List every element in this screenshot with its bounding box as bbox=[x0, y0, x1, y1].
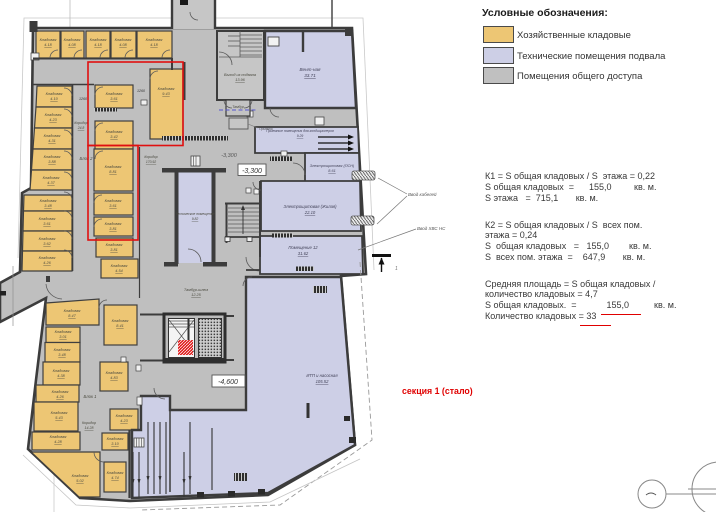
svg-text:170.92: 170.92 bbox=[146, 160, 156, 164]
svg-text:1260: 1260 bbox=[137, 89, 145, 93]
svg-text:Кладовая: Кладовая bbox=[44, 155, 61, 159]
svg-text:4.18: 4.18 bbox=[150, 43, 158, 47]
svg-text:Приемные помещения для кондици: Приемные помещения для кондиционеров bbox=[266, 129, 334, 133]
svg-text:3.62: 3.62 bbox=[43, 242, 51, 246]
svg-text:ИТП и насосная: ИТП и насосная bbox=[306, 373, 338, 378]
svg-text:Ввод ХВС НС: Ввод ХВС НС bbox=[417, 226, 446, 231]
svg-text:5.43: 5.43 bbox=[55, 416, 63, 420]
svg-text:Кладовая: Кладовая bbox=[64, 38, 81, 42]
svg-text:3.01: 3.01 bbox=[59, 335, 66, 339]
svg-text:Кладовая: Кладовая bbox=[107, 471, 124, 475]
svg-text:Кладовая: Кладовая bbox=[64, 309, 81, 313]
svg-text:-3,300: -3,300 bbox=[221, 153, 238, 159]
svg-text:4.38: 4.38 bbox=[57, 374, 65, 378]
svg-text:4.83: 4.83 bbox=[110, 376, 118, 380]
svg-text:Блок 2: Блок 2 bbox=[80, 156, 94, 161]
svg-text:Тамбур-шлюз: Тамбур-шлюз bbox=[184, 288, 208, 292]
svg-text:Кладовая: Кладовая bbox=[46, 92, 63, 96]
svg-text:Кладовая: Кладовая bbox=[39, 217, 56, 221]
svg-text:Кладовая: Кладовая bbox=[72, 474, 89, 478]
svg-text:3.10: 3.10 bbox=[111, 442, 119, 446]
svg-text:Кладовая: Кладовая bbox=[40, 199, 57, 203]
svg-text:Коридор: Коридор bbox=[144, 155, 157, 159]
svg-text:Кладовая: Кладовая bbox=[44, 134, 61, 138]
svg-text:5.02: 5.02 bbox=[76, 479, 84, 483]
svg-text:Кладовая: Кладовая bbox=[112, 319, 129, 323]
svg-text:Кладовая: Кладовая bbox=[52, 390, 69, 394]
svg-text:3.48: 3.48 bbox=[44, 204, 52, 208]
svg-text:Электрощитовая (ПСН): Электрощитовая (ПСН) bbox=[310, 164, 355, 168]
svg-text:Кладовая: Кладовая bbox=[106, 130, 123, 134]
svg-text:Блок 1: Блок 1 bbox=[84, 394, 97, 399]
svg-text:24.8: 24.8 bbox=[77, 126, 85, 130]
svg-text:4.23: 4.23 bbox=[49, 118, 57, 122]
svg-text:1260: 1260 bbox=[79, 97, 87, 101]
svg-text:4.08: 4.08 bbox=[68, 43, 76, 47]
svg-text:Кладовая: Кладовая bbox=[39, 256, 56, 260]
svg-text:Кладовая: Кладовая bbox=[111, 264, 128, 268]
svg-text:105.52: 105.52 bbox=[316, 379, 329, 384]
svg-text:8.41: 8.41 bbox=[116, 324, 123, 328]
svg-text:Кладовая: Кладовая bbox=[107, 437, 124, 441]
svg-text:8.61: 8.61 bbox=[328, 169, 335, 173]
svg-text:4.28: 4.28 bbox=[54, 440, 62, 444]
svg-text:4.10: 4.10 bbox=[50, 97, 58, 101]
svg-text:22.10: 22.10 bbox=[304, 210, 316, 215]
svg-text:4.08: 4.08 bbox=[119, 43, 127, 47]
svg-text:4.26: 4.26 bbox=[56, 395, 64, 399]
svg-text:3.81: 3.81 bbox=[109, 227, 116, 231]
svg-text:Выход из подвала: Выход из подвала bbox=[224, 73, 256, 77]
svg-text:Кладовая: Кладовая bbox=[106, 243, 123, 247]
svg-text:4.18: 4.18 bbox=[44, 43, 52, 47]
svg-text:33.71: 33.71 bbox=[304, 73, 316, 78]
svg-text:4.54: 4.54 bbox=[115, 269, 122, 273]
svg-text:Электрощитовая (Жилая): Электрощитовая (Жилая) bbox=[283, 204, 337, 209]
svg-text:Кладовая: Кладовая bbox=[116, 414, 133, 418]
svg-text:Кладовая: Кладовая bbox=[51, 411, 68, 415]
svg-text:9.43: 9.43 bbox=[162, 92, 170, 96]
svg-text:31.62: 31.62 bbox=[298, 251, 309, 256]
svg-text:3.61: 3.61 bbox=[109, 204, 116, 208]
svg-text:Кладовая: Кладовая bbox=[105, 165, 122, 169]
svg-text:Вент-ная: Вент-ная bbox=[299, 67, 321, 72]
svg-text:Кладовая: Кладовая bbox=[39, 237, 56, 241]
svg-text:3.81: 3.81 bbox=[110, 248, 117, 252]
svg-text:Техническое помещение: Техническое помещение bbox=[175, 212, 214, 216]
svg-text:Кладовая: Кладовая bbox=[146, 38, 163, 42]
svg-text:-4,600: -4,600 bbox=[218, 379, 238, 386]
svg-text:Кладовая: Кладовая bbox=[106, 92, 123, 96]
svg-text:Кладовая: Кладовая bbox=[50, 435, 67, 439]
svg-text:4.18: 4.18 bbox=[94, 43, 102, 47]
svg-text:9.29: 9.29 bbox=[297, 134, 304, 138]
svg-text:4.74: 4.74 bbox=[111, 476, 118, 480]
svg-text:4.37: 4.37 bbox=[47, 181, 55, 185]
svg-text:8.81: 8.81 bbox=[109, 170, 116, 174]
svg-text:Кладовая: Кладовая bbox=[40, 38, 57, 42]
svg-text:1: 1 bbox=[395, 266, 398, 272]
svg-text:13.96: 13.96 bbox=[235, 78, 245, 82]
svg-text:Кладовая: Кладовая bbox=[106, 371, 123, 375]
svg-text:Коридор: Коридор bbox=[82, 421, 96, 425]
svg-text:14.28: 14.28 bbox=[85, 426, 94, 430]
svg-text:Кладовая: Кладовая bbox=[105, 222, 122, 226]
svg-text:Коридор: Коридор bbox=[74, 121, 87, 125]
svg-text:Тамбур: Тамбур bbox=[232, 105, 244, 109]
svg-text:Кладовая: Кладовая bbox=[43, 176, 60, 180]
svg-text:3.61: 3.61 bbox=[110, 97, 117, 101]
svg-text:3.88: 3.88 bbox=[48, 160, 56, 164]
svg-text:Кладовая: Кладовая bbox=[158, 87, 175, 91]
svg-text:3.42: 3.42 bbox=[110, 135, 118, 139]
svg-text:3.48: 3.48 bbox=[58, 353, 66, 357]
svg-text:4.26: 4.26 bbox=[43, 261, 51, 265]
svg-text:Кладовая: Кладовая bbox=[90, 38, 107, 42]
svg-text:12.25: 12.25 bbox=[191, 293, 201, 297]
svg-text:4.31: 4.31 bbox=[48, 139, 55, 143]
svg-text:Кладовая: Кладовая bbox=[105, 199, 122, 203]
svg-text:Помещение 12: Помещение 12 bbox=[288, 245, 318, 250]
svg-text:-3,300: -3,300 bbox=[242, 168, 262, 175]
svg-text:Кладовая: Кладовая bbox=[115, 38, 132, 42]
svg-text:9.82: 9.82 bbox=[192, 217, 199, 221]
svg-text:Кладовая: Кладовая bbox=[54, 348, 71, 352]
svg-text:Кладовая: Кладовая bbox=[45, 113, 62, 117]
svg-text:3.61: 3.61 bbox=[43, 222, 50, 226]
svg-text:Кладовая: Кладовая bbox=[53, 369, 70, 373]
svg-text:4.23: 4.23 bbox=[120, 419, 128, 423]
svg-text:8.47: 8.47 bbox=[68, 314, 76, 318]
svg-text:Ввод кабелей: Ввод кабелей bbox=[408, 191, 437, 197]
svg-text:Кладовая: Кладовая bbox=[55, 330, 72, 334]
